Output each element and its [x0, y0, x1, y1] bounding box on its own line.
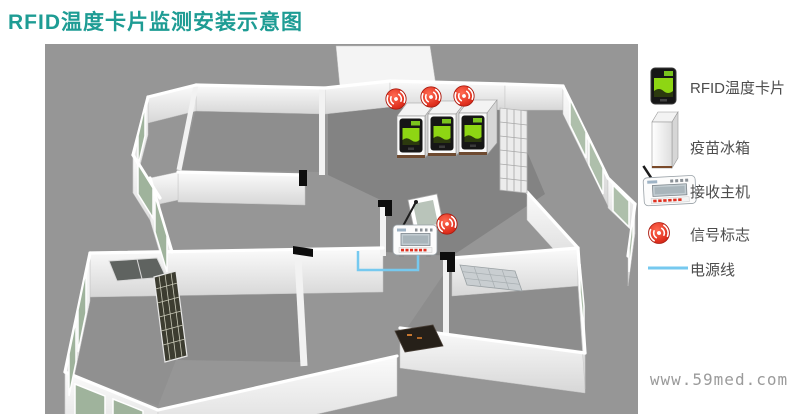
- legend-label-signal-marker: 信号标志: [690, 224, 750, 245]
- signal-marker-3: [454, 86, 474, 106]
- page-title: RFID温度卡片监测安装示意图: [8, 6, 303, 36]
- rfid-card-icon: [651, 68, 676, 104]
- legend-label-vaccine-fridge: 疫苗冰箱: [690, 137, 750, 158]
- signal-marker-1: [386, 89, 406, 109]
- floorplan-diagram: [45, 44, 638, 414]
- signal-marker-2: [421, 87, 441, 107]
- floorplan-svg: [45, 44, 638, 414]
- signal-marker-icon: [649, 223, 670, 244]
- grid-wall: [500, 108, 527, 193]
- page: RFID温度卡片监测安装示意图: [0, 0, 800, 414]
- legend-label-power-line: 电源线: [690, 259, 735, 280]
- legend-label-receiver-host: 接收主机: [690, 181, 750, 202]
- legend-label-rfid-card: RFID温度卡片: [690, 77, 785, 98]
- watermark: www.59med.com: [640, 370, 798, 389]
- signal-marker-receiver: [437, 214, 457, 234]
- legend: RFID温度卡片 疫苗冰箱 接收主机 信号标志 电源线: [640, 46, 800, 376]
- vaccine-fridge-icon: [652, 112, 678, 168]
- vaccine-fridge-3: [459, 100, 497, 155]
- receiver-host-icon: [642, 163, 696, 206]
